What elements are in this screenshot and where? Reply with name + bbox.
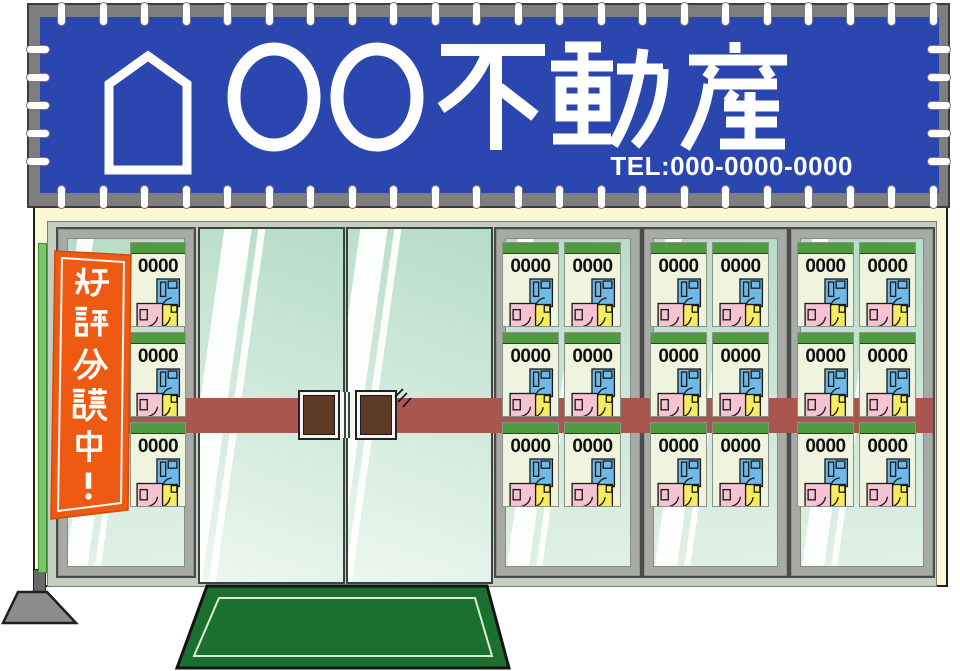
flyer-price-text: 0000	[798, 256, 853, 277]
banner-tie-icon	[846, 2, 855, 26]
banner-tie-icon	[927, 101, 951, 110]
flyer-price-text: 0000	[798, 346, 853, 367]
flyer-price-text: 0000	[503, 436, 558, 457]
floorplan-thumbnail	[571, 458, 616, 507]
window-panel-3: 0000 0000	[642, 227, 789, 578]
flyer-header-bar	[131, 333, 185, 344]
property-flyer[interactable]: 0000	[797, 332, 854, 417]
flyer-price-text: 0000	[503, 346, 558, 367]
flyer-grid: 0000 0000	[797, 242, 927, 570]
floorplan-thumbnail	[509, 458, 554, 507]
property-flyer[interactable]: 0000	[859, 242, 916, 327]
floorplan-thumbnail	[804, 458, 849, 507]
banner-tie-icon	[597, 185, 606, 209]
flyer-price-text: 0000	[131, 256, 185, 277]
flyer-header-bar	[713, 423, 768, 434]
phone-number-text: TEL:000-0000-0000	[610, 151, 853, 182]
floorplan-thumbnail	[804, 368, 849, 417]
sign-banner: TEL:000-0000-0000	[27, 3, 950, 208]
flyer-header-bar	[565, 333, 620, 344]
flyer-header-bar	[651, 423, 706, 434]
flyer-price-text: 0000	[565, 256, 620, 277]
flyer-header-bar	[503, 243, 558, 254]
floorplan-thumbnail	[866, 458, 911, 507]
shine-marks-icon	[393, 388, 413, 410]
flyer-price-text: 0000	[860, 346, 915, 367]
banner-tie-icon	[431, 185, 440, 209]
flyer-price-text: 0000	[713, 346, 768, 367]
banner-tie-icon	[26, 73, 50, 82]
banner-tie-icon	[555, 2, 564, 26]
banner-tie-icon	[597, 2, 606, 26]
floorplan-thumbnail	[657, 278, 702, 327]
banner-tie-icon	[472, 2, 481, 26]
door-edge-line	[344, 392, 346, 438]
banner-tie-icon	[140, 185, 149, 209]
banner-tie-icon	[57, 2, 66, 26]
flyer-header-bar	[798, 333, 853, 344]
banner-tie-icon	[638, 185, 647, 209]
property-flyer[interactable]: 0000	[502, 332, 559, 417]
flyer-price-text: 0000	[565, 346, 620, 367]
flyer-price-text: 0000	[860, 256, 915, 277]
flyer-header-bar	[503, 333, 558, 344]
property-flyer[interactable]: 0000	[797, 422, 854, 507]
banner-tie-icon	[99, 185, 108, 209]
property-flyer[interactable]: 0000	[130, 422, 186, 507]
property-flyer[interactable]: 0000	[564, 422, 621, 507]
floorplan-thumbnail	[657, 368, 702, 417]
flyer-price-text: 0000	[131, 436, 185, 457]
banner-tie-icon	[306, 2, 315, 26]
banner-tie-icon	[887, 185, 896, 209]
banner-tie-icon	[140, 2, 149, 26]
flyer-price-text: 0000	[651, 256, 706, 277]
banner-tie-icon	[929, 2, 938, 26]
banner-tie-icon	[182, 2, 191, 26]
banner-tie-icon	[472, 185, 481, 209]
nobori-stand-base	[2, 590, 80, 626]
banner-tie-icon	[389, 185, 398, 209]
flyer-price-text: 0000	[860, 436, 915, 457]
door-edge-line	[348, 392, 350, 438]
banner-tie-icon	[265, 185, 274, 209]
property-flyer[interactable]: 0000	[650, 422, 707, 507]
flyer-header-bar	[860, 333, 915, 344]
banner-tie-icon	[26, 45, 50, 54]
floorplan-thumbnail	[866, 368, 911, 417]
property-flyer[interactable]: 0000	[130, 332, 186, 417]
flyer-header-bar	[131, 423, 185, 434]
floorplan-thumbnail	[571, 278, 616, 327]
banner-tie-icon	[223, 2, 232, 26]
banner-tie-icon	[680, 185, 689, 209]
door-handle-plate	[303, 395, 335, 435]
banner-tie-icon	[929, 185, 938, 209]
banner-tie-icon	[514, 2, 523, 26]
property-flyer[interactable]: 0000	[502, 242, 559, 327]
flyer-price-text: 0000	[713, 436, 768, 457]
floorplan-thumbnail	[136, 278, 181, 327]
door-handle-left[interactable]	[298, 390, 340, 440]
floorplan-thumbnail	[657, 458, 702, 507]
banner-tie-icon	[804, 2, 813, 26]
window-panel-2: 0000 0000	[494, 227, 642, 578]
property-flyer[interactable]: 0000	[859, 422, 916, 507]
banner-tie-icon	[680, 2, 689, 26]
flyer-price-text: 0000	[503, 256, 558, 277]
floorplan-thumbnail	[719, 278, 764, 327]
banner-tie-icon	[57, 185, 66, 209]
nobori-flag	[49, 249, 133, 523]
real-estate-storefront-illustration: 0000 0000	[0, 0, 960, 671]
banner-tie-icon	[763, 2, 772, 26]
property-flyer[interactable]: 0000	[650, 242, 707, 327]
flyer-header-bar	[503, 423, 558, 434]
banner-tie-icon	[223, 185, 232, 209]
flyer-header-bar	[860, 423, 915, 434]
company-name-text	[227, 41, 792, 153]
banner-tie-icon	[846, 185, 855, 209]
floorplan-thumbnail	[509, 278, 554, 327]
banner-tie-icon	[348, 2, 357, 26]
flyer-price-text: 0000	[798, 436, 853, 457]
banner-tie-icon	[887, 2, 896, 26]
floorplan-thumbnail	[719, 458, 764, 507]
banner-tie-icon	[306, 185, 315, 209]
flyer-header-bar	[131, 243, 185, 254]
banner-tie-icon	[927, 73, 951, 82]
flyer-grid: 0000 0000	[502, 242, 634, 570]
banner-tie-icon	[555, 185, 564, 209]
property-flyer[interactable]: 0000	[712, 422, 769, 507]
banner-tie-icon	[265, 2, 274, 26]
banner-tie-icon	[99, 2, 108, 26]
entrance-mat	[175, 584, 511, 671]
banner-tie-icon	[721, 185, 730, 209]
floorplan-thumbnail	[719, 368, 764, 417]
flyer-header-bar	[798, 243, 853, 254]
flyer-grid: 0000 0000	[650, 242, 781, 570]
house-icon	[106, 52, 190, 174]
banner-tie-icon	[182, 185, 191, 209]
property-flyer[interactable]: 0000	[650, 332, 707, 417]
banner-tie-icon	[804, 185, 813, 209]
floorplan-thumbnail	[866, 278, 911, 327]
flyer-price-text: 0000	[651, 346, 706, 367]
floorplan-thumbnail	[136, 368, 181, 417]
floorplan-thumbnail	[136, 458, 181, 507]
banner-tie-icon	[514, 185, 523, 209]
property-flyer[interactable]: 0000	[502, 422, 559, 507]
flyer-header-bar	[565, 423, 620, 434]
banner-tie-icon	[26, 129, 50, 138]
flyer-price-text: 0000	[565, 436, 620, 457]
banner-tie-icon	[389, 2, 398, 26]
floorplan-thumbnail	[571, 368, 616, 417]
floorplan-thumbnail	[509, 368, 554, 417]
banner-tie-icon	[26, 157, 50, 166]
property-flyer[interactable]: 0000	[130, 242, 186, 327]
window-panel-4: 0000 0000	[789, 227, 935, 578]
property-flyer[interactable]: 0000	[712, 242, 769, 327]
flyer-header-bar	[860, 243, 915, 254]
door-handle-right[interactable]	[355, 390, 397, 440]
nobori-pole	[38, 243, 47, 573]
property-flyer[interactable]: 0000	[859, 332, 916, 417]
flyer-header-bar	[713, 243, 768, 254]
banner-tie-icon	[927, 45, 951, 54]
floorplan-thumbnail	[804, 278, 849, 327]
flyer-header-bar	[651, 333, 706, 344]
banner-tie-icon	[431, 2, 440, 26]
flyer-header-bar	[713, 333, 768, 344]
banner-tie-icon	[348, 185, 357, 209]
banner-tie-icon	[26, 101, 50, 110]
banner-tie-icon	[721, 2, 730, 26]
door-handle-plate	[360, 395, 392, 435]
banner-tie-icon	[638, 2, 647, 26]
flyer-header-bar	[565, 243, 620, 254]
property-flyer[interactable]: 0000	[797, 242, 854, 327]
banner-tie-icon	[927, 157, 951, 166]
flyer-price-text: 0000	[651, 436, 706, 457]
banner-tie-icon	[927, 129, 951, 138]
flyer-price-text: 0000	[713, 256, 768, 277]
flyer-price-text: 0000	[131, 346, 185, 367]
banner-tie-icon	[763, 185, 772, 209]
flyer-header-bar	[798, 423, 853, 434]
property-flyer[interactable]: 0000	[564, 332, 621, 417]
property-flyer[interactable]: 0000	[712, 332, 769, 417]
flyer-header-bar	[651, 243, 706, 254]
property-flyer[interactable]: 0000	[564, 242, 621, 327]
